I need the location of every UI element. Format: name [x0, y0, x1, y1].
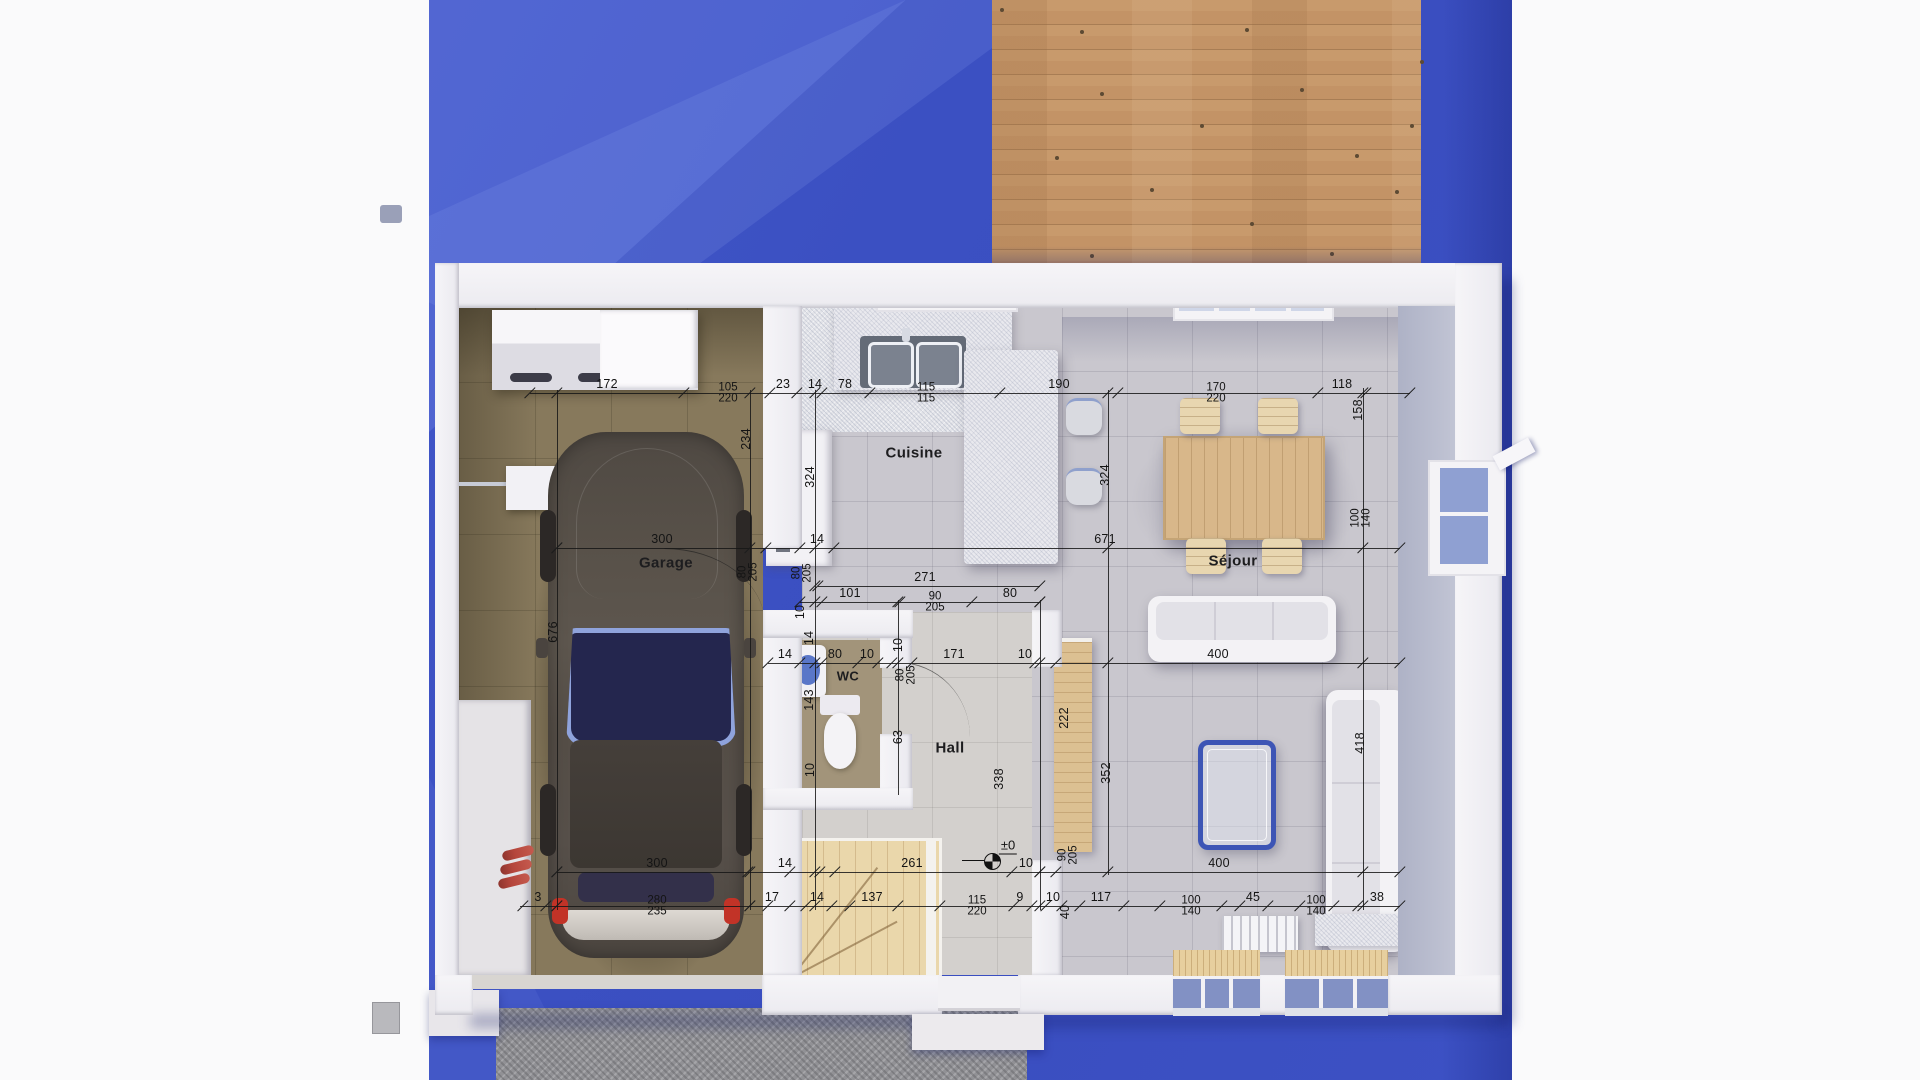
room-label-hall: Hall	[935, 740, 964, 757]
floor-plan-render: 1721052202314781151151901702201183001467…	[0, 0, 1920, 1080]
room-label-wc: WC	[837, 669, 859, 684]
room-label-sejour: Séjour	[1208, 553, 1257, 570]
room-label-cuisine: Cuisine	[886, 445, 943, 462]
room-label-garage: Garage	[639, 555, 693, 572]
room-label-layer: GarageCuisineWCHallSéjour	[0, 0, 1920, 1080]
